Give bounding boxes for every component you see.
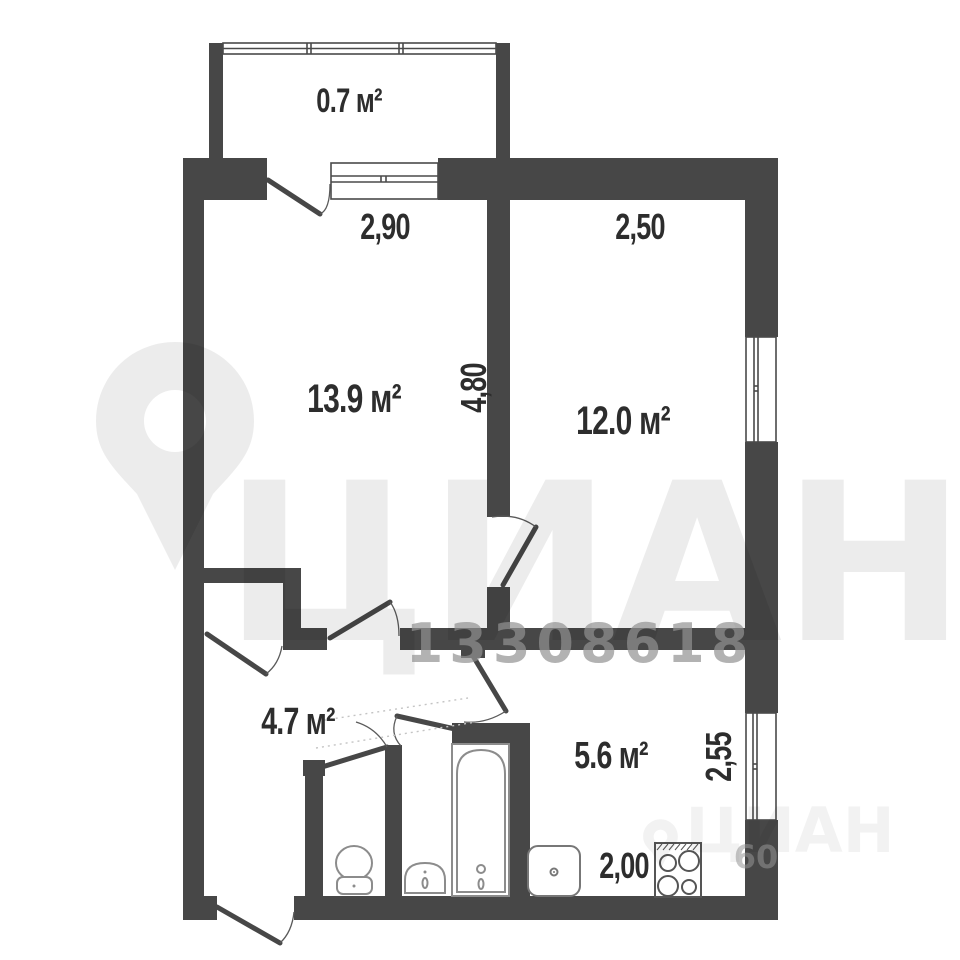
bathroom-door-leaf (397, 716, 455, 729)
living-room-area-label: 13.9 м² (307, 379, 401, 419)
closet-door-leaf (207, 634, 266, 674)
kitchen-area-label: 5.6 м² (574, 737, 648, 775)
wall-top-right (438, 158, 778, 200)
wall-right-lower (745, 820, 778, 896)
entrance-door-leaf (217, 907, 280, 943)
balcony-glazing (223, 43, 496, 54)
wc-bathroom-divider (385, 745, 402, 896)
bedroom-door-leaf (503, 527, 536, 585)
balcony-door-leaf (268, 180, 320, 214)
floor-plan: 0.7 м² 13.9 м² 12.0 м² 4.7 м² 5.6 м² 2,9… (0, 0, 960, 960)
balcony-area-label: 0.7 м² (316, 84, 381, 118)
balcony-door-arc (320, 184, 330, 214)
bedroom-area-label: 12.0 м² (576, 401, 670, 441)
dim-bedroom-width: 2,50 (615, 209, 665, 245)
dim-kitchen-width: 2,00 (599, 848, 649, 884)
living-room-door-arc (390, 602, 399, 636)
washbasin (405, 863, 445, 893)
wall-right-upper (745, 158, 778, 337)
bathtub (452, 744, 509, 896)
wall-left (183, 158, 204, 896)
floor-plan-drawing (0, 0, 960, 960)
hallway-area-label: 4.7 м² (261, 703, 335, 741)
bedroom-door-arc (492, 516, 536, 527)
closet-right-wall (283, 583, 301, 650)
living-room-door-leaf (330, 602, 390, 638)
dim-living-room-depth: 4,80 (456, 363, 492, 413)
wall-room-divider (487, 200, 510, 517)
wall-room-divider-stub (487, 587, 510, 628)
balcony-wall-left (209, 43, 223, 158)
wc-door-leaf (322, 747, 387, 767)
wall-hall-left-seg (301, 628, 327, 650)
wall-right-middle (745, 442, 778, 713)
bathroom-top-wall (452, 723, 530, 743)
wc-left-wall (305, 762, 323, 896)
kitchen-sink (528, 846, 580, 896)
bathroom-door-arc (394, 716, 401, 746)
kitchen-door-arc (464, 711, 506, 722)
dim-balcony-width: 2,90 (360, 209, 410, 245)
stove (655, 843, 701, 897)
living-room-window (331, 163, 438, 199)
wc-door-arc (356, 722, 387, 747)
closet-top-wall (183, 568, 301, 583)
balcony-wall-right (496, 43, 510, 158)
wall-hall-long (400, 628, 745, 650)
wall-bottom-left-stub (183, 896, 217, 920)
bedroom-window (746, 337, 776, 442)
dim-kitchen-depth: 2,55 (701, 732, 737, 782)
closet-door-arc (266, 646, 282, 674)
wall-bottom (294, 896, 778, 920)
toilet (336, 846, 372, 894)
kitchen-door-leaf (470, 651, 506, 711)
kitchen-window (746, 713, 776, 820)
entrance-door-arc (280, 912, 294, 943)
